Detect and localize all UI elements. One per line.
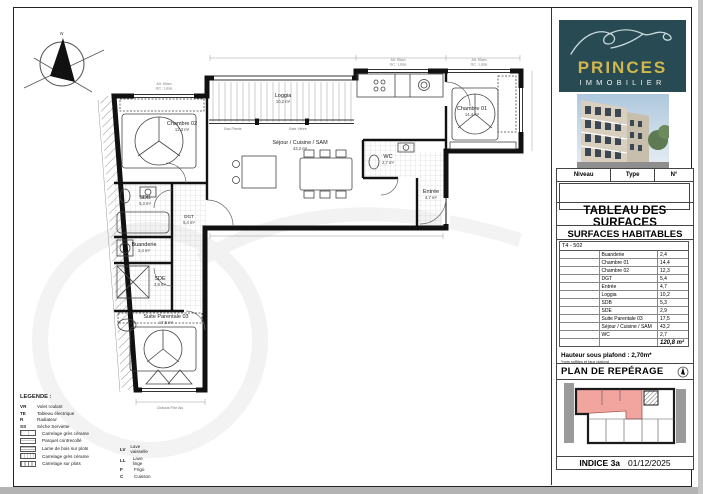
legend-code: C: [120, 474, 134, 479]
surface-total-row: 120,8 m²: [560, 339, 688, 346]
surface-row: Suite Parentale 03 17,5: [560, 315, 688, 323]
indice-date: 01/12/2025: [628, 458, 671, 468]
legend-title: LEGENDE :: [20, 394, 89, 400]
rule: [557, 456, 693, 457]
legend-label: Lave linge: [133, 456, 152, 466]
unit-header-cell: Niveau: [557, 169, 611, 181]
indice-label: INDICE 3a: [579, 458, 620, 468]
loggia-railing: [214, 74, 352, 82]
room-area-wc: 2,7 m²: [382, 160, 394, 165]
rule: [557, 363, 693, 364]
surface-row: SDB 5,3: [560, 299, 688, 307]
legend-code: SS: [20, 424, 37, 429]
bac-plante-label: Bac Planté: [224, 127, 241, 131]
room-area-dgt: 5,4 m²: [183, 220, 195, 225]
legend-abbrev-row: TE Tableau électrique: [20, 411, 89, 416]
rule: [557, 239, 693, 240]
surface-row: SDE 2,9: [560, 307, 688, 315]
legend-floor-row: Parquet contrecollé: [20, 438, 89, 444]
surface-value: 17,5: [658, 315, 688, 322]
window-chambre01-top: [448, 67, 510, 75]
legend-label: Sèche Serviette: [37, 424, 69, 429]
surfaces-table: T4 - 502 Buanderie 2,4 Chambre 01 14,4 C…: [559, 241, 689, 347]
baie-vitree-label: Baie Vitrée: [289, 127, 307, 131]
room-area-sdb: 5,3 m²: [139, 201, 151, 206]
surface-value: 10,2: [658, 291, 688, 298]
legend-label: Tableau électrique: [37, 411, 74, 416]
room-area-loggia: 10,2 m²: [276, 99, 291, 104]
indice-footer: INDICE 3a01/12/2025: [557, 458, 693, 468]
surface-value: 43,2: [658, 323, 688, 330]
scan-edge-right: [698, 0, 703, 494]
scan-edge-bottom: [0, 487, 703, 494]
surfaces-panel: Niveau Type N° TABLEAU DES SURFACES SURF…: [556, 168, 694, 470]
surfaces-unit: T4 - 502: [560, 242, 688, 251]
unit-header-table: Niveau Type N°: [557, 169, 693, 182]
room-area-entree: 4,7 m²: [425, 195, 437, 200]
legend-code: F: [120, 467, 134, 472]
location-mini-plan: [562, 381, 688, 455]
legend-label: Volet roulant: [37, 404, 63, 409]
room-area-buanderie: 2,4 m²: [138, 248, 150, 253]
reperage-title: PLAN DE REPÉRAGE: [561, 366, 663, 377]
surface-label: Chambre 01: [600, 259, 658, 266]
window-note: GC : Lisse: [390, 63, 407, 67]
legend-abbrev-row: VR Volet roulant: [20, 404, 89, 409]
window-suite-bottom: [142, 386, 196, 394]
room-area-suite: 17,5 m²: [159, 320, 174, 325]
rule: [557, 225, 693, 226]
window-note: GC : Lisse: [471, 63, 488, 67]
mini-compass-icon: [677, 366, 689, 378]
legend-label: Lame de bois sur plots: [42, 446, 88, 451]
unit-header-cell: N°: [655, 169, 693, 181]
legend-appliances: LV Lave vaisselle LL Lave linge F Frigo …: [120, 444, 152, 480]
surface-label: Suite Parentale 03: [600, 315, 658, 322]
surface-label: SDE: [600, 307, 658, 314]
legend-code: LV: [120, 447, 130, 452]
legend-abbrev-row: R Radiateur: [20, 417, 89, 422]
surface-label: DGT: [600, 275, 658, 282]
window-note: GC : Lisse: [156, 87, 173, 91]
room-area-chambre01: 14,4 m²: [465, 112, 480, 117]
surface-value: 2,9: [658, 307, 688, 314]
room-area-sde: 2,9 m²: [154, 282, 166, 287]
window-note: Alt. 90cm: [157, 82, 172, 86]
legend-code: VR: [20, 404, 37, 409]
surface-row: Buanderie 2,4: [560, 251, 688, 259]
surface-label: Entrée: [600, 283, 658, 290]
surface-value: 5,3: [658, 299, 688, 306]
ceiling-height: Hauteur sous plafond : 2,70m*: [561, 352, 652, 359]
window-note: Châssis Fixe Alu: [157, 406, 184, 410]
surface-total: 120,8 m²: [658, 339, 688, 346]
scanned-floor-plan-page: { "page": { "compass": "N" }, "plan": { …: [0, 0, 703, 494]
surface-row: Chambre 01 14,4: [560, 259, 688, 267]
legend-label: Lave vaisselle: [130, 444, 151, 454]
floor-swatch-icon: [20, 453, 36, 459]
surface-label: SDB: [600, 299, 658, 306]
surface-value: 12,3: [658, 267, 688, 274]
window-note: Alt. 90cm: [391, 58, 406, 62]
surface-value: 14,4: [658, 259, 688, 266]
surface-row: WC 2,7: [560, 331, 688, 339]
legend-label: Carrelage grès cérame: [42, 431, 89, 436]
surface-label: Loggia: [600, 291, 658, 298]
window-note: Alt. 90cm: [472, 58, 487, 62]
room-area-sejour: 43,2 m²: [293, 146, 308, 151]
agency-logo: PRINCES IMMOBILIER: [559, 20, 686, 92]
surface-row: Loggia 10,2: [560, 291, 688, 299]
panel-divider: [551, 8, 552, 485]
brand-subtitle: IMMOBILIER: [579, 78, 665, 87]
legend-floor-row: Carrelage grès cérame: [20, 430, 89, 436]
compass-icon: N: [24, 31, 104, 92]
brand-name: PRINCES: [578, 60, 668, 75]
surface-row: DGT 5,4: [560, 275, 688, 283]
legend-floor-row: Lame de bois sur plots: [20, 446, 89, 452]
chambre02-furniture: [120, 99, 204, 168]
horse-logo-icon: [565, 24, 680, 58]
legend-code: R: [20, 417, 37, 422]
floor-swatch-icon: [20, 438, 36, 444]
surface-label: Séjour / Cuisine / SAM: [600, 323, 658, 330]
floor-swatch-icon: [20, 430, 36, 436]
room-area-chambre02: 12,3 m²: [175, 127, 190, 132]
dining-table: [300, 150, 352, 198]
legend-abbrev-row: SS Sèche Serviette: [20, 424, 89, 429]
surface-label: Buanderie: [600, 251, 658, 258]
legend-code: TE: [20, 411, 37, 416]
room-label-dgt: DGT: [184, 214, 194, 219]
legend-label: Cuisson: [134, 474, 151, 479]
compass-label: N: [60, 31, 64, 36]
legend-label: Carrelage sur plots: [42, 461, 81, 466]
legend: LEGENDE : VR Volet roulant TE Tableau él…: [20, 394, 89, 468]
surface-row: Entrée 4,7: [560, 283, 688, 291]
legend-floor-row: Carrelage sur plots: [20, 461, 89, 467]
legend-label: Radiateur: [37, 417, 57, 422]
legend-code: LL: [120, 458, 133, 463]
rule: [557, 379, 693, 380]
surface-row: Séjour / Cuisine / SAM 43,2: [560, 323, 688, 331]
floor-swatch-icon: [20, 446, 36, 452]
surface-value: 5,4: [658, 275, 688, 282]
rule: [557, 202, 693, 203]
legend-label: Carrelage grès cérame: [42, 454, 89, 459]
kitchen-island: [233, 156, 277, 188]
chambre01-furniture: [450, 76, 516, 149]
kitchen-counter: [357, 74, 443, 97]
building-photo: [577, 94, 669, 168]
surface-value: 2,7: [658, 331, 688, 338]
surface-value: 2,4: [658, 251, 688, 258]
surface-label: WC: [600, 331, 658, 338]
surface-value: 4,7: [658, 283, 688, 290]
floor-swatch-icon: [20, 461, 36, 467]
surface-row: Chambre 02 12,3: [560, 267, 688, 275]
window-chambre01-right: [517, 88, 525, 132]
legend-label: Parquet contrecollé: [42, 438, 82, 443]
unit-header-cell: Type: [611, 169, 655, 181]
surface-label: Chambre 02: [600, 267, 658, 274]
legend-label: Frigo: [134, 467, 144, 472]
legend-floor-row: Carrelage grès cérame: [20, 453, 89, 459]
